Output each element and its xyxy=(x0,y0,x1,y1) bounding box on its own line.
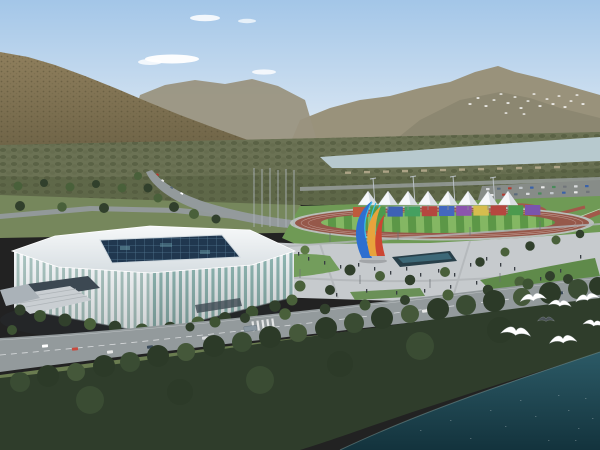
tree xyxy=(475,257,485,267)
tree xyxy=(92,180,100,188)
tree xyxy=(443,290,454,301)
sparkle xyxy=(568,410,569,411)
tree xyxy=(552,236,561,245)
distant-building xyxy=(535,166,541,168)
sparkle xyxy=(470,438,471,439)
distant-building xyxy=(345,172,351,174)
car xyxy=(107,350,113,354)
banner-panel xyxy=(405,206,420,216)
tree xyxy=(325,285,335,295)
sparkle xyxy=(592,418,593,419)
tree xyxy=(301,246,310,255)
distant-bird xyxy=(492,99,495,101)
person-marker xyxy=(298,252,299,256)
tree xyxy=(360,300,371,311)
distant-bird xyxy=(506,102,509,104)
distant-building xyxy=(440,169,446,171)
car xyxy=(486,188,490,190)
tree xyxy=(210,317,221,328)
person-marker xyxy=(340,265,341,269)
distant-bird xyxy=(513,96,516,98)
tree xyxy=(212,215,221,224)
distant-bird xyxy=(484,105,487,107)
distant-bird xyxy=(551,103,554,105)
tree xyxy=(189,209,199,219)
sparkle xyxy=(450,420,451,421)
tree xyxy=(295,281,306,292)
distant-bird xyxy=(563,106,566,108)
person-marker xyxy=(540,277,541,281)
tree xyxy=(14,182,23,191)
tree xyxy=(57,202,67,212)
person-marker xyxy=(308,257,309,261)
tree xyxy=(405,275,416,286)
person-marker xyxy=(470,263,471,267)
sparkle xyxy=(535,416,536,417)
distant-bird xyxy=(545,98,548,100)
distant-bird xyxy=(581,103,584,105)
canopy-blob xyxy=(10,372,30,392)
tree xyxy=(169,202,179,212)
person-marker xyxy=(424,289,425,293)
sparkle xyxy=(578,428,579,429)
sparkle xyxy=(505,426,506,427)
tree xyxy=(99,203,109,213)
car xyxy=(538,192,542,194)
banner-panel xyxy=(473,206,488,216)
canopy-blob xyxy=(246,366,274,394)
canopy-blob xyxy=(232,332,252,352)
distant-bird xyxy=(538,105,541,107)
distant-building xyxy=(497,167,503,169)
tree xyxy=(66,183,75,192)
canopy-blob xyxy=(315,317,337,339)
banner-panel xyxy=(387,207,402,217)
sparkle xyxy=(548,440,549,441)
tree xyxy=(400,295,410,305)
banner-panel xyxy=(456,206,471,216)
tree xyxy=(287,295,298,306)
person-marker xyxy=(358,263,359,267)
car xyxy=(550,192,554,194)
distant-building xyxy=(516,167,522,169)
person-marker xyxy=(396,291,397,295)
tree xyxy=(7,325,17,335)
tree xyxy=(40,179,48,187)
car xyxy=(530,187,534,189)
person-marker xyxy=(366,289,367,293)
banner-wall xyxy=(353,205,540,217)
distant-bird xyxy=(499,93,502,95)
canopy-blob xyxy=(167,379,193,405)
car xyxy=(514,193,518,195)
cloud xyxy=(238,19,256,23)
canopy-blob xyxy=(401,305,419,323)
canopy-blob xyxy=(259,326,281,348)
tree xyxy=(15,305,26,316)
glint xyxy=(160,243,172,247)
tree xyxy=(523,279,534,290)
tree xyxy=(345,265,356,276)
tree xyxy=(525,241,535,251)
tree xyxy=(501,248,510,257)
canopy-blob xyxy=(427,298,449,320)
tree xyxy=(144,184,153,193)
distant-bird xyxy=(523,113,526,115)
canopy-blob xyxy=(344,313,364,333)
canopy-blob xyxy=(147,345,169,367)
distant-bird xyxy=(575,94,578,96)
sparkle xyxy=(558,395,559,396)
car xyxy=(526,193,530,195)
banner-panel xyxy=(508,205,523,215)
car xyxy=(541,186,545,188)
distant-building xyxy=(554,166,560,168)
car xyxy=(508,187,512,189)
person-marker xyxy=(450,285,451,289)
canopy-blob xyxy=(37,365,59,387)
distant-bird xyxy=(468,103,471,105)
distant-bird xyxy=(476,97,479,99)
person-marker xyxy=(454,273,455,277)
distant-building xyxy=(421,169,427,171)
tree xyxy=(576,230,585,239)
canopy-blob xyxy=(406,332,434,360)
glint xyxy=(200,250,210,254)
person-marker xyxy=(374,267,375,271)
distant-building xyxy=(459,168,465,170)
car xyxy=(497,188,501,190)
car xyxy=(72,347,78,351)
canopy-blob xyxy=(76,386,104,414)
tree xyxy=(320,304,331,315)
canopy-blob xyxy=(456,295,476,315)
distant-bird xyxy=(526,100,529,102)
car xyxy=(563,186,567,188)
tree xyxy=(440,267,450,277)
tree xyxy=(34,310,46,322)
glint xyxy=(120,246,130,250)
person-marker xyxy=(406,267,407,271)
canopy-blob xyxy=(93,355,115,377)
car xyxy=(586,191,590,193)
banner-panel xyxy=(422,206,437,216)
distant-building xyxy=(383,170,389,172)
cloud xyxy=(138,59,162,65)
canopy-blob xyxy=(203,335,225,357)
sparkle xyxy=(490,410,491,411)
person-marker xyxy=(324,261,325,265)
sparkle xyxy=(585,398,586,399)
tree xyxy=(545,271,555,281)
cloud xyxy=(252,69,276,74)
distant-bird xyxy=(505,112,508,114)
tree xyxy=(154,194,163,203)
person-marker xyxy=(560,269,561,273)
person-marker xyxy=(476,281,477,285)
distant-bird xyxy=(569,100,572,102)
distant-building xyxy=(478,168,484,170)
person-marker xyxy=(336,293,337,297)
canopy-blob xyxy=(483,290,505,312)
canopy-blob xyxy=(371,307,393,329)
canopy-blob xyxy=(177,343,195,361)
canopy-blob xyxy=(120,352,140,372)
tree xyxy=(134,172,142,180)
tree xyxy=(375,271,385,281)
banner-panel xyxy=(439,206,454,216)
tree xyxy=(279,308,291,320)
banner-panel xyxy=(491,205,506,215)
sparkle xyxy=(420,430,421,431)
tree xyxy=(15,201,25,211)
car xyxy=(552,186,556,188)
car xyxy=(574,191,578,193)
banner-panel xyxy=(525,205,540,215)
tree xyxy=(186,323,195,332)
car xyxy=(574,185,578,187)
distant-bird xyxy=(532,93,535,95)
scene xyxy=(0,0,600,450)
tree xyxy=(269,300,281,312)
car xyxy=(519,187,523,189)
tree xyxy=(84,318,96,330)
person-marker xyxy=(486,257,487,261)
person-marker xyxy=(420,273,421,277)
distant-building xyxy=(402,170,408,172)
tree xyxy=(118,184,127,193)
car xyxy=(562,192,566,194)
distant-bird xyxy=(519,107,522,109)
person-marker xyxy=(580,255,581,259)
distant-building xyxy=(364,171,370,173)
person-marker xyxy=(514,267,515,271)
sparkle xyxy=(520,400,521,401)
tree xyxy=(240,313,250,323)
car xyxy=(42,344,48,348)
car xyxy=(585,185,589,187)
person-marker xyxy=(438,269,439,273)
cloud xyxy=(190,15,220,21)
sparkle xyxy=(575,440,576,441)
canopy-blob xyxy=(289,324,307,342)
person-marker xyxy=(390,271,391,275)
tree xyxy=(59,314,72,327)
canopy-blob xyxy=(67,363,85,381)
person-marker xyxy=(500,263,501,267)
distant-bird xyxy=(557,95,560,97)
canopy-blob xyxy=(327,351,353,377)
